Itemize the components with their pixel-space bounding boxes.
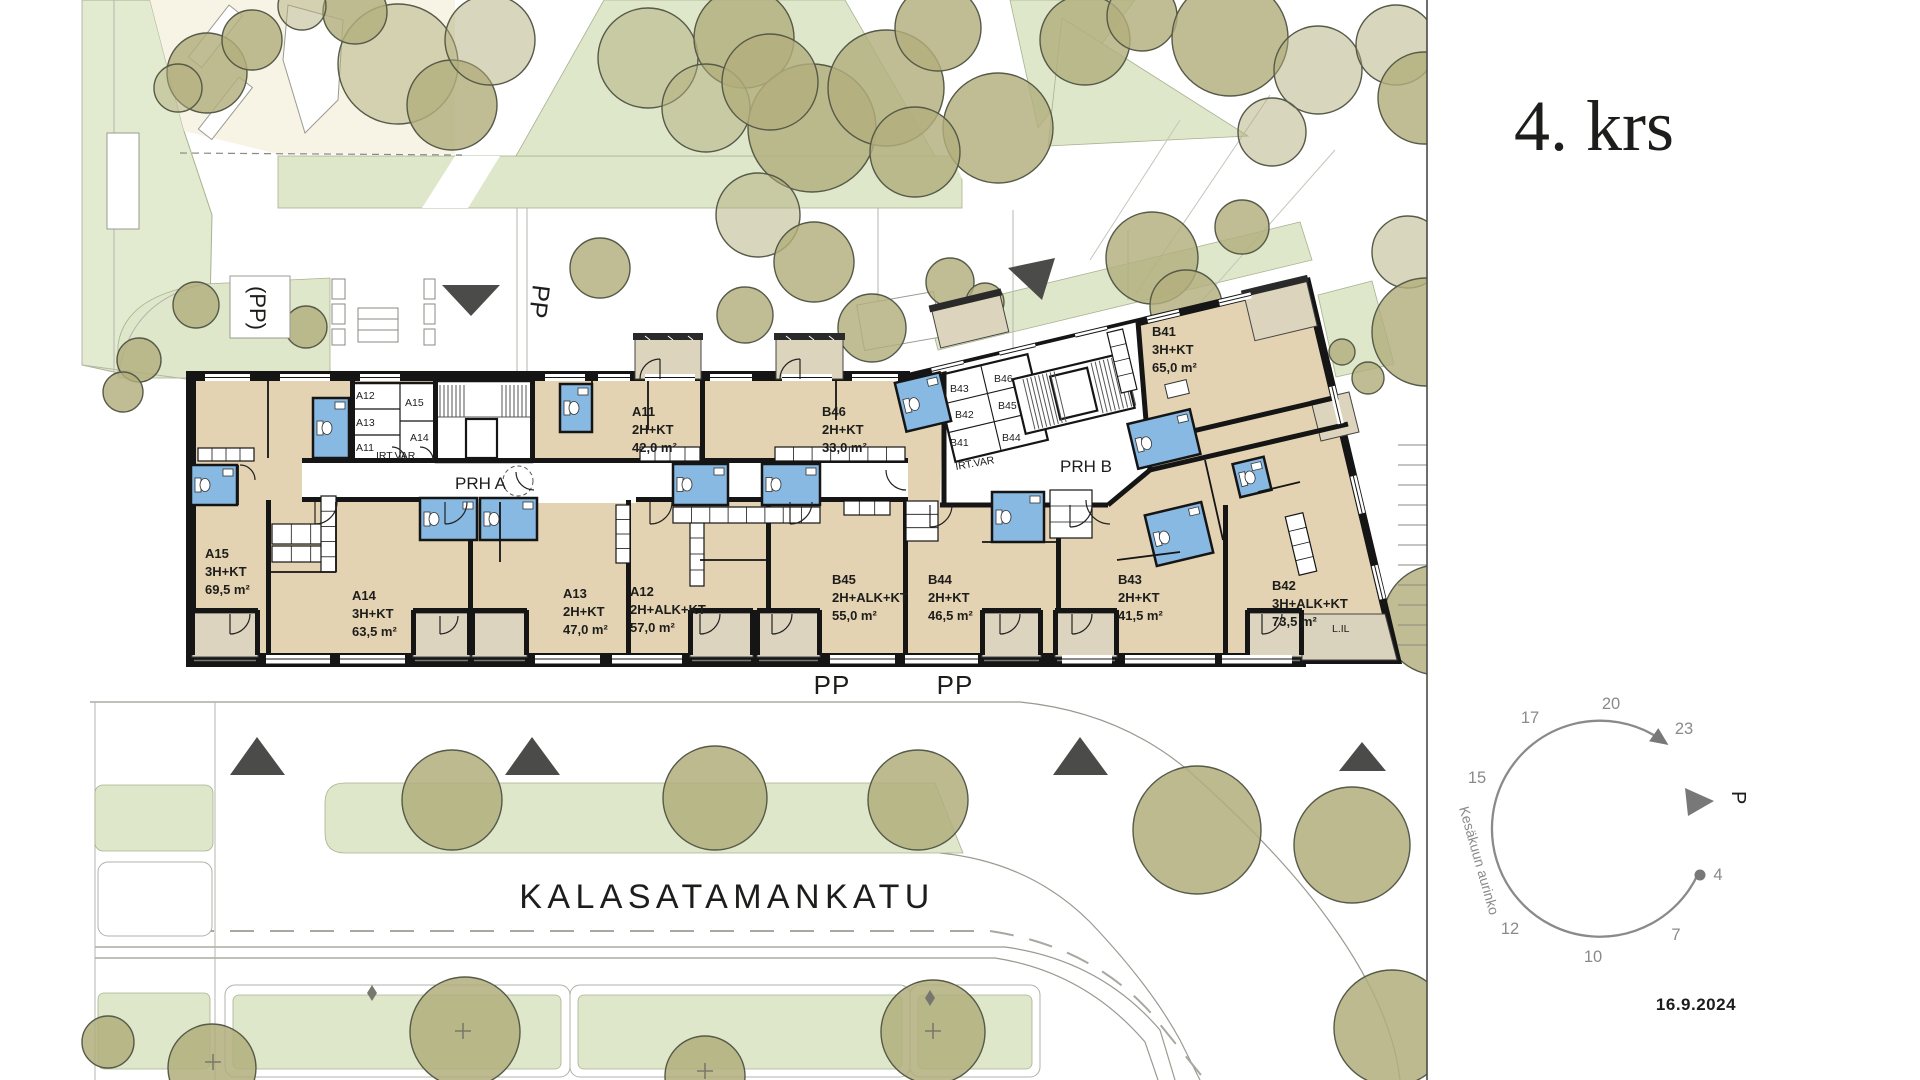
svg-text:(PP): (PP) (245, 286, 270, 330)
svg-text:A12: A12 (630, 584, 654, 599)
svg-text:2H+KT: 2H+KT (632, 422, 674, 437)
svg-text:57,0 m²: 57,0 m² (630, 620, 675, 635)
svg-text:55,0 m²: 55,0 m² (832, 608, 877, 623)
svg-text:3H+KT: 3H+KT (205, 564, 247, 579)
svg-text:A11: A11 (356, 442, 374, 454)
svg-text:12: 12 (1501, 920, 1519, 938)
svg-text:IRT.VAR.: IRT.VAR. (376, 450, 418, 462)
svg-text:16.9.2024: 16.9.2024 (1656, 995, 1736, 1014)
svg-text:PP: PP (814, 670, 851, 700)
svg-text:2H+ALK+KT: 2H+ALK+KT (832, 590, 908, 605)
svg-text:A15: A15 (405, 397, 424, 409)
svg-text:B41: B41 (1152, 324, 1176, 339)
svg-text:63,5 m²: 63,5 m² (352, 624, 397, 639)
svg-text:7: 7 (1671, 926, 1680, 944)
svg-text:B42: B42 (1272, 578, 1296, 593)
svg-text:A13: A13 (563, 586, 587, 601)
svg-text:A14: A14 (410, 432, 429, 444)
svg-text:A15: A15 (205, 546, 229, 561)
svg-text:3H+ALK+KT: 3H+ALK+KT (1272, 596, 1348, 611)
svg-text:33,0 m²: 33,0 m² (822, 440, 867, 455)
svg-text:41,5 m²: 41,5 m² (1118, 608, 1163, 623)
svg-text:B46: B46 (822, 404, 846, 419)
svg-text:A11: A11 (632, 404, 655, 419)
svg-text:20: 20 (1602, 695, 1620, 713)
svg-text:3H+KT: 3H+KT (1152, 342, 1194, 357)
svg-text:23: 23 (1675, 720, 1693, 738)
svg-text:B45: B45 (832, 572, 856, 587)
svg-text:2H+KT: 2H+KT (563, 604, 605, 619)
svg-text:69,5 m²: 69,5 m² (205, 582, 250, 597)
svg-text:2H+KT: 2H+KT (1118, 590, 1160, 605)
svg-text:17: 17 (1521, 709, 1539, 727)
svg-text:B41: B41 (950, 437, 969, 449)
svg-text:B44: B44 (1002, 432, 1021, 444)
svg-text:47,0 m²: 47,0 m² (563, 622, 608, 637)
svg-text:B43: B43 (950, 383, 969, 395)
svg-text:2H+KT: 2H+KT (822, 422, 864, 437)
svg-text:2H+KT: 2H+KT (928, 590, 970, 605)
svg-text:73,5 m²: 73,5 m² (1272, 614, 1317, 629)
svg-text:4: 4 (1713, 866, 1722, 884)
svg-text:42,0 m²: 42,0 m² (632, 440, 677, 455)
svg-text:B44: B44 (928, 572, 953, 587)
svg-text:B45: B45 (998, 400, 1017, 412)
svg-text:PP: PP (937, 670, 974, 700)
svg-text:15: 15 (1468, 769, 1486, 787)
svg-text:KALASATAMANKATU: KALASATAMANKATU (519, 878, 934, 916)
svg-text:10: 10 (1584, 948, 1602, 966)
svg-text:P: P (1727, 791, 1749, 804)
svg-text:4. krs: 4. krs (1514, 86, 1674, 166)
svg-text:B46: B46 (994, 373, 1013, 385)
svg-text:PRH A: PRH A (455, 474, 507, 493)
svg-text:3H+KT: 3H+KT (352, 606, 394, 621)
svg-text:PP: PP (523, 283, 555, 320)
svg-text:B42: B42 (955, 409, 974, 421)
svg-text:B43: B43 (1118, 572, 1142, 587)
svg-text:L.IL: L.IL (1332, 623, 1350, 635)
svg-text:A13: A13 (356, 417, 375, 429)
svg-text:2H+ALK+KT: 2H+ALK+KT (630, 602, 706, 617)
svg-text:46,5 m²: 46,5 m² (928, 608, 973, 623)
svg-text:65,0 m²: 65,0 m² (1152, 360, 1197, 375)
svg-text:A14: A14 (352, 588, 377, 603)
svg-text:A12: A12 (356, 390, 375, 402)
svg-text:PRH B: PRH B (1060, 457, 1112, 476)
